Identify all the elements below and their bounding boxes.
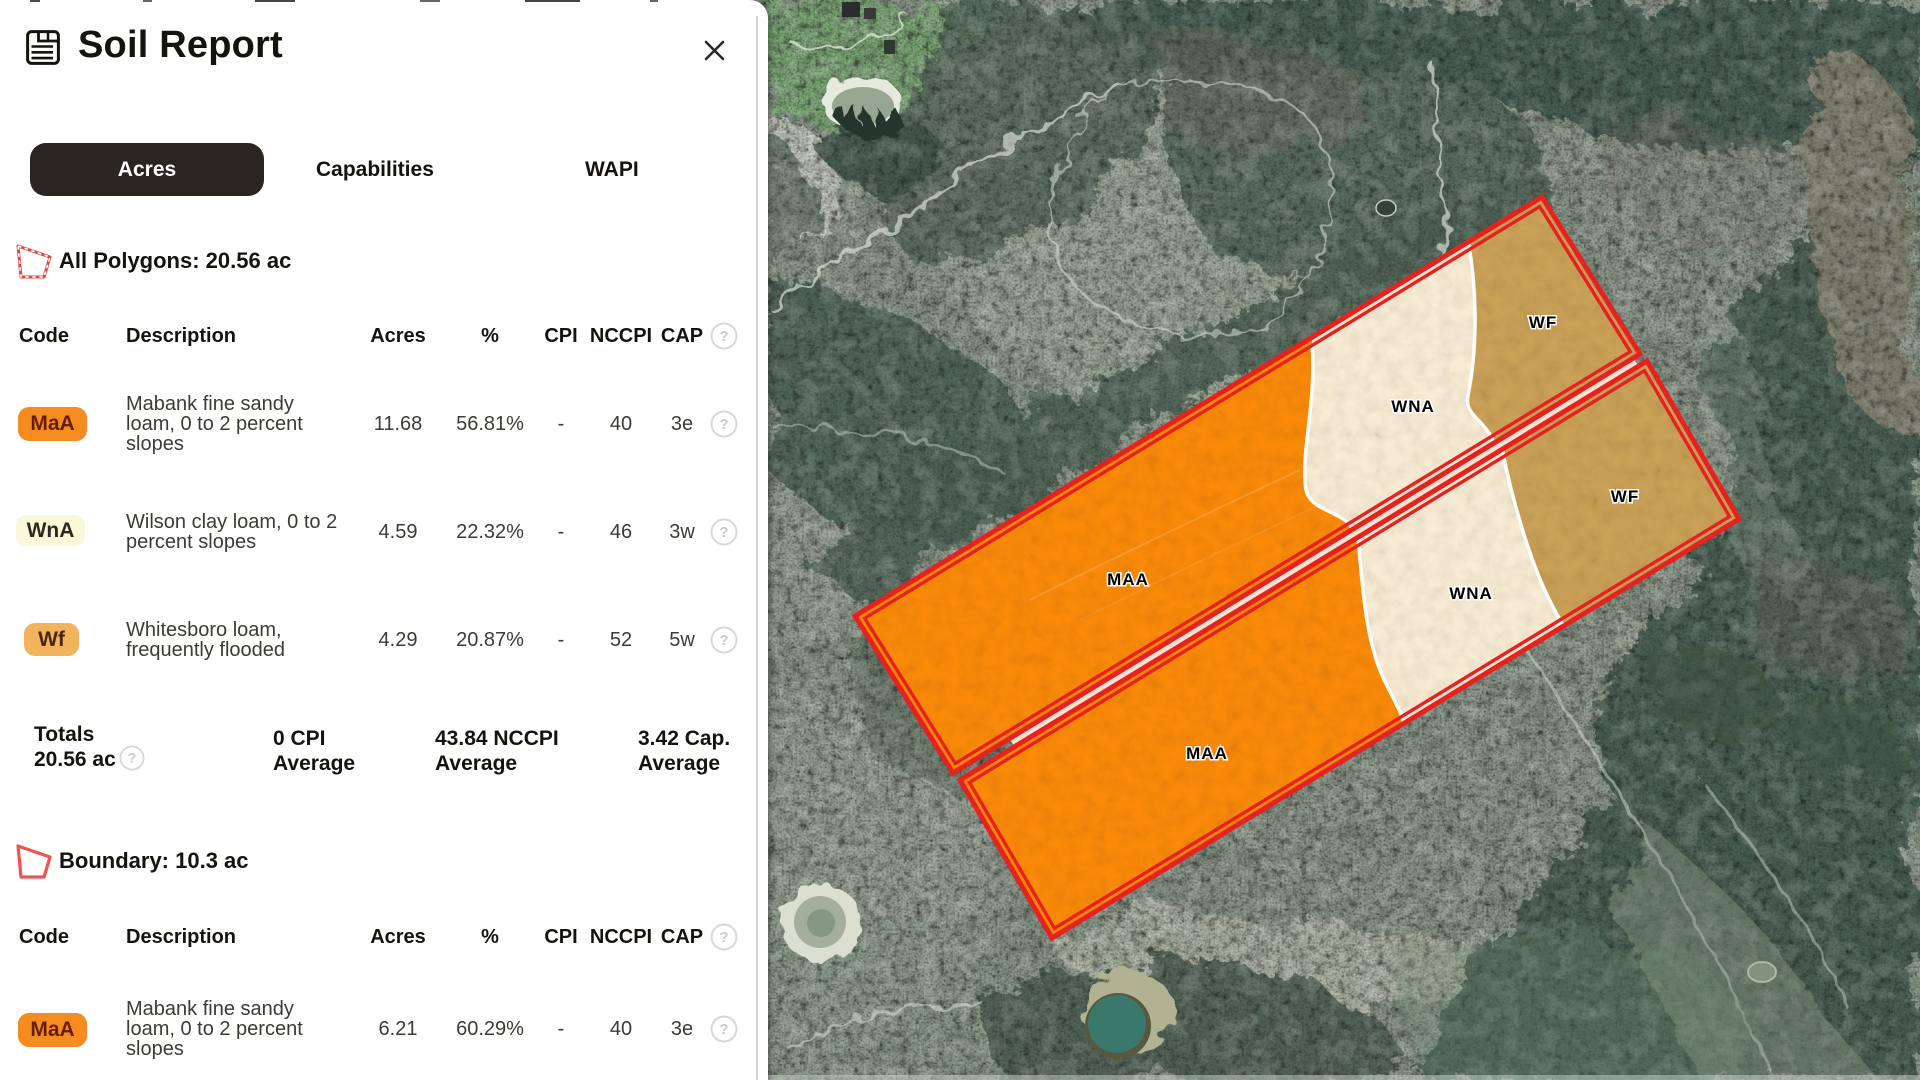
svg-text:WF: WF bbox=[1611, 487, 1639, 506]
svg-text:WF: WF bbox=[1529, 313, 1557, 332]
svg-text:?: ? bbox=[128, 750, 137, 766]
svg-text:?: ? bbox=[719, 416, 728, 433]
svg-text:?: ? bbox=[719, 1021, 728, 1038]
svg-text:?: ? bbox=[719, 632, 728, 649]
svg-text:WNA: WNA bbox=[1391, 397, 1435, 416]
svg-text:MAA: MAA bbox=[1186, 744, 1228, 763]
svg-text:MAA: MAA bbox=[1107, 570, 1149, 589]
svg-text:?: ? bbox=[719, 524, 728, 541]
svg-text:?: ? bbox=[719, 929, 728, 946]
svg-text:WNA: WNA bbox=[1449, 584, 1493, 603]
svg-text:?: ? bbox=[719, 328, 728, 345]
